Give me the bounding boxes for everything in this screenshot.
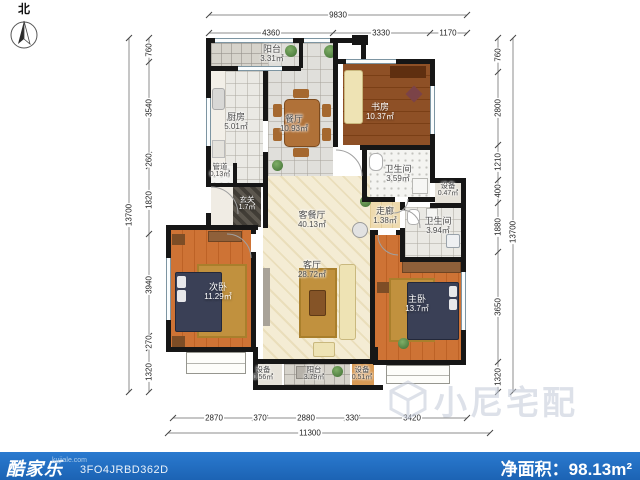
plant [398,338,409,349]
dim-right-seg: 2800 [494,98,503,118]
fan [352,222,368,238]
room-label-living: 客厅28.72㎡ [298,260,326,280]
dim-right-seg: 1210 [494,152,503,172]
bay-window-second-bedroom [186,352,246,374]
toilet [369,153,383,171]
dim-top-seg: 4360 [261,29,281,38]
footer-bar: 酷家乐 kujiale.com 3FO4JRBD362D 净面积：98.13m² [0,452,640,480]
dim-top-seg: 1170 [438,29,457,38]
room-label-second-bedroom: 次卧11.29㎡ [204,282,231,302]
dim-bottom-overall: 11300 [298,429,322,438]
room-label-kitchen: 厨房5.01㎡ [224,112,248,132]
window [215,38,293,43]
watermark: 小尼宅配 [388,376,578,424]
dim-left-seg: 1820 [145,190,154,210]
study-sofa [344,70,363,124]
room-label-balcony-bottom: 阳台3.79㎡ [304,366,325,382]
dining-chair [293,89,309,98]
tv-bench [263,268,270,326]
kitchen-sink [212,88,225,110]
room-label-equip-1: 设备0.47㎡ [438,182,459,198]
net-area-label: 净面积： [501,460,569,479]
plant [360,196,371,207]
dim-bottom-seg: 370 [252,414,267,423]
toilet [407,209,420,225]
plant [324,45,337,58]
plant [285,45,297,57]
room-label-bath-1: 卫生间3.59㎡ [384,164,411,184]
wardrobe [402,260,461,273]
net-area: 净面积：98.13m² [501,455,632,480]
north-label: 北 [6,0,42,17]
dim-right-seg: 3650 [494,297,503,317]
dim-right-seg: 760 [494,47,503,62]
dim-right-seg: 400 [494,183,503,198]
bath-vanity [412,178,428,194]
pillow [449,299,457,310]
compass-icon [8,17,40,51]
dim-top-seg: 3330 [371,29,391,38]
dining-chair [322,128,331,141]
window [166,258,171,320]
dining-chair [322,104,331,117]
floor-plan-screenshot: 北 [0,0,640,480]
room-label-living-dining: 客餐厅40.13㎡ [298,210,326,230]
washing-machine [446,234,460,248]
watermark-cube-icon [388,380,428,420]
room-label-equip-3: 设备0.51㎡ [352,366,373,382]
plant [332,366,343,377]
window [461,272,466,330]
dim-left-seg: 260 [145,152,154,167]
room-label-corridor: 走廊1.38㎡ [373,206,397,226]
plant [272,160,283,171]
window [346,59,396,64]
pillow [177,290,186,302]
brand-site: kujiale.com [52,457,87,464]
watermark-text: 小尼宅配 [434,376,578,424]
room-label-balcony-top: 阳台3.31㎡ [260,44,284,64]
room-label-equip-2: 设备0.56㎡ [253,366,274,382]
dim-left-seg: 1320 [145,362,154,382]
dresser [208,231,242,242]
dim-bottom-seg: 2880 [296,414,316,423]
pillow [177,276,186,288]
armchair [313,342,335,357]
north-indicator: 北 [6,0,42,56]
dim-right-overall: 13700 [509,220,518,244]
study-desk [390,66,426,78]
kitchen-stove [212,140,225,158]
dining-chair [293,148,309,157]
net-area-unit: m² [611,460,632,479]
room-label-dining: 餐厅10.93㎡ [280,114,308,134]
nightstand [377,282,389,293]
room-label-foyer: 玄关1.7㎡ [239,196,256,212]
nightstand [172,336,185,347]
living-sofa [339,264,356,340]
pillow [449,286,457,297]
dim-left-seg: 3540 [145,98,154,118]
dim-left-seg: 760 [145,42,154,57]
room-label-study: 书房10.37㎡ [366,102,394,122]
dim-right-seg: 1880 [494,217,503,237]
coffee-table [309,290,326,316]
room-label-bath-2: 卫生间3.94㎡ [424,216,451,236]
room-label-master-bedroom: 主卧13.7㎡ [405,294,429,314]
dim-left-seg: 270 [145,334,154,349]
room-entry-floor [211,187,233,227]
dim-left-seg: 3940 [145,275,154,295]
window [304,38,330,43]
plan-id: 3FO4JRBD362D [80,464,169,476]
net-area-value: 98.13 [569,460,612,479]
dim-bottom-seg: 2870 [204,414,224,423]
window [430,86,435,134]
dim-left-overall: 13700 [125,203,134,227]
dim-bottom-seg: 330 [344,414,359,423]
dim-top-overall: 9830 [328,11,348,20]
nightstand [172,234,185,245]
sliding-door [238,66,282,71]
room-label-duct: 管道0.13㎡ [210,163,231,179]
window [206,98,211,146]
